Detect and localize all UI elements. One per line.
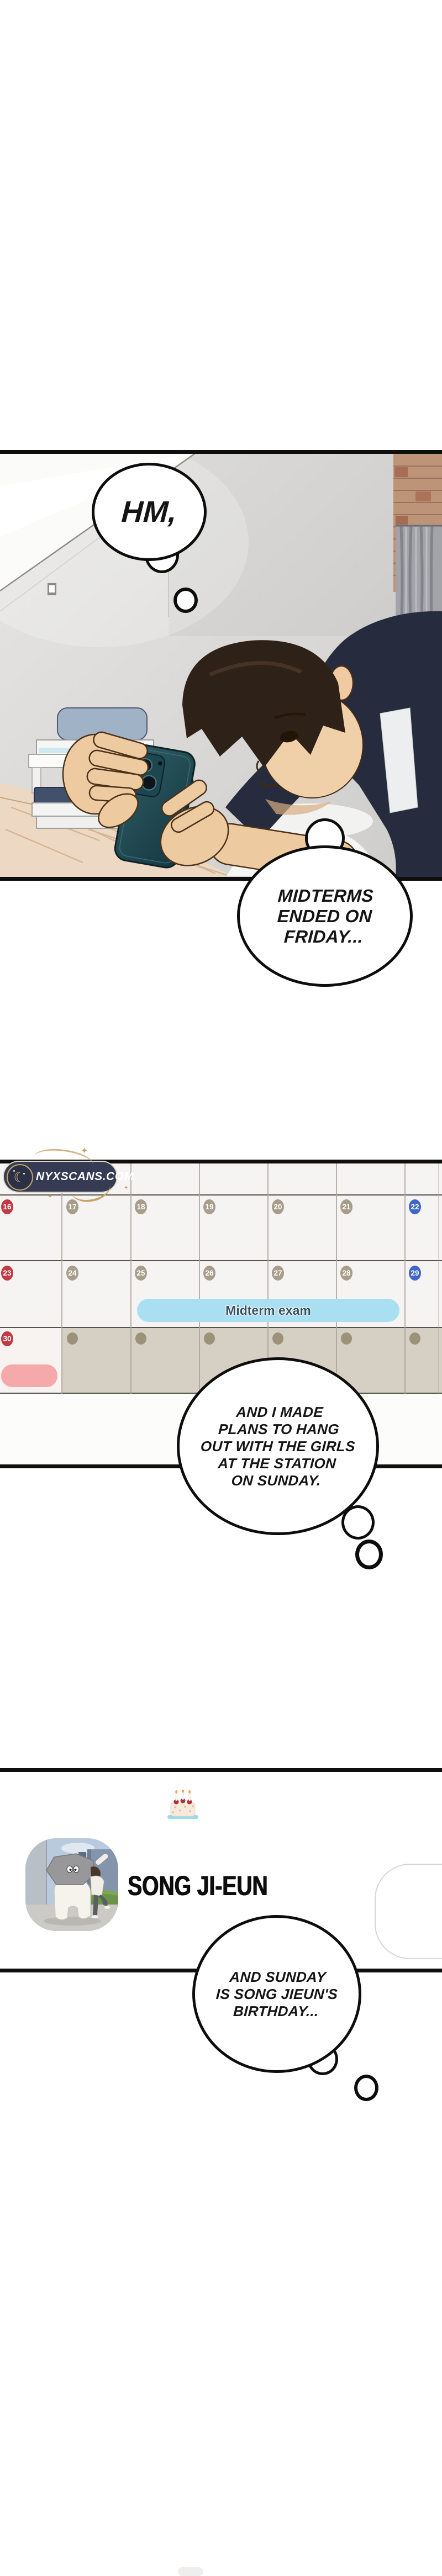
sparkle-icon: ✦ bbox=[124, 1185, 128, 1191]
next-panel-sliver bbox=[178, 2567, 203, 2576]
next-month-day-marker bbox=[272, 1332, 283, 1345]
next-month-day-marker bbox=[67, 1332, 78, 1345]
calendar-day-29[interactable]: 29 bbox=[409, 1266, 421, 1281]
grid-line bbox=[438, 1163, 439, 1394]
thought-text: AND I MADE PLANS TO HANG OUT WITH THE GI… bbox=[198, 1404, 357, 1489]
thought-text: HM, bbox=[120, 495, 177, 529]
contact-name: SONG JI-EUN bbox=[128, 1871, 268, 1901]
grid-line bbox=[199, 1163, 200, 1394]
moon-stars-icon: ☾ bbox=[7, 1164, 33, 1191]
thought-bubble-plans: AND I MADE PLANS TO HANG OUT WITH THE GI… bbox=[177, 1357, 379, 1535]
calendar-day-21[interactable]: 21 bbox=[340, 1199, 352, 1214]
grid-line bbox=[336, 1163, 337, 1394]
calendar-day-16[interactable]: 16 bbox=[1, 1199, 13, 1214]
grid-line bbox=[61, 1163, 62, 1394]
grid-line bbox=[0, 1194, 442, 1196]
calendar-day-25[interactable]: 25 bbox=[135, 1266, 147, 1281]
event-pink-pill[interactable] bbox=[1, 1364, 57, 1387]
thought-trail-circle bbox=[355, 1540, 383, 1569]
event-label: Midterm exam bbox=[225, 1303, 311, 1318]
thought-bubble-birthday: AND SUNDAY IS SONG JIEUN'S BIRTHDAY... bbox=[192, 1915, 361, 2073]
calendar-day-28[interactable]: 28 bbox=[340, 1266, 352, 1281]
next-month-day-marker bbox=[135, 1332, 146, 1345]
next-month-day-marker bbox=[204, 1332, 215, 1345]
calendar-day-30[interactable]: 30 bbox=[1, 1331, 13, 1346]
calendar-day-27[interactable]: 27 bbox=[272, 1266, 284, 1281]
avatar-illustration bbox=[25, 1838, 118, 1931]
calendar-day-19[interactable]: 19 bbox=[203, 1199, 215, 1214]
event-midterm-exam[interactable]: Midterm exam bbox=[137, 1299, 399, 1322]
thought-text: MIDTERMS ENDED ON FRIDAY... bbox=[276, 886, 375, 947]
calendar-day-23[interactable]: 23 bbox=[1, 1266, 13, 1281]
contact-avatar[interactable] bbox=[25, 1838, 118, 1931]
next-month-day-marker bbox=[409, 1332, 420, 1345]
bedroom-scene-illustration bbox=[0, 454, 442, 877]
calendar-day-26[interactable]: 26 bbox=[203, 1266, 215, 1281]
chat-button[interactable] bbox=[375, 1864, 442, 1959]
calendar-day-22[interactable]: 22 bbox=[409, 1199, 421, 1214]
grid-line bbox=[404, 1163, 406, 1394]
webtoon-page: HM, MIDTERMS ENDED ON FRIDAY... 16 17 18… bbox=[0, 0, 442, 2576]
thought-bubble-midterms: MIDTERMS ENDED ON FRIDAY... bbox=[237, 845, 413, 987]
panel1-bedroom bbox=[0, 454, 442, 877]
calendar-day-18[interactable]: 18 bbox=[135, 1199, 147, 1214]
grid-line bbox=[0, 1327, 442, 1328]
thought-bubble-hm: HM, bbox=[92, 463, 207, 561]
thought-text: AND SUNDAY IS SONG JIEUN'S BIRTHDAY... bbox=[214, 1969, 339, 2020]
grid-line bbox=[130, 1163, 131, 1394]
grid-line bbox=[0, 1260, 442, 1261]
birthday-cake-icon bbox=[165, 1790, 201, 1823]
calendar-day-20[interactable]: 20 bbox=[272, 1199, 284, 1214]
calendar-day-24[interactable]: 24 bbox=[66, 1266, 78, 1281]
contact-panel-top-border bbox=[0, 1768, 442, 1772]
panel1-top-border bbox=[0, 450, 442, 454]
thought-trail-circle bbox=[354, 2075, 378, 2101]
next-month-day-marker bbox=[341, 1332, 352, 1345]
sparkle-icon: ✦ bbox=[48, 1193, 52, 1200]
calendar-day-17[interactable]: 17 bbox=[66, 1199, 78, 1214]
thought-trail-circle bbox=[173, 588, 198, 613]
